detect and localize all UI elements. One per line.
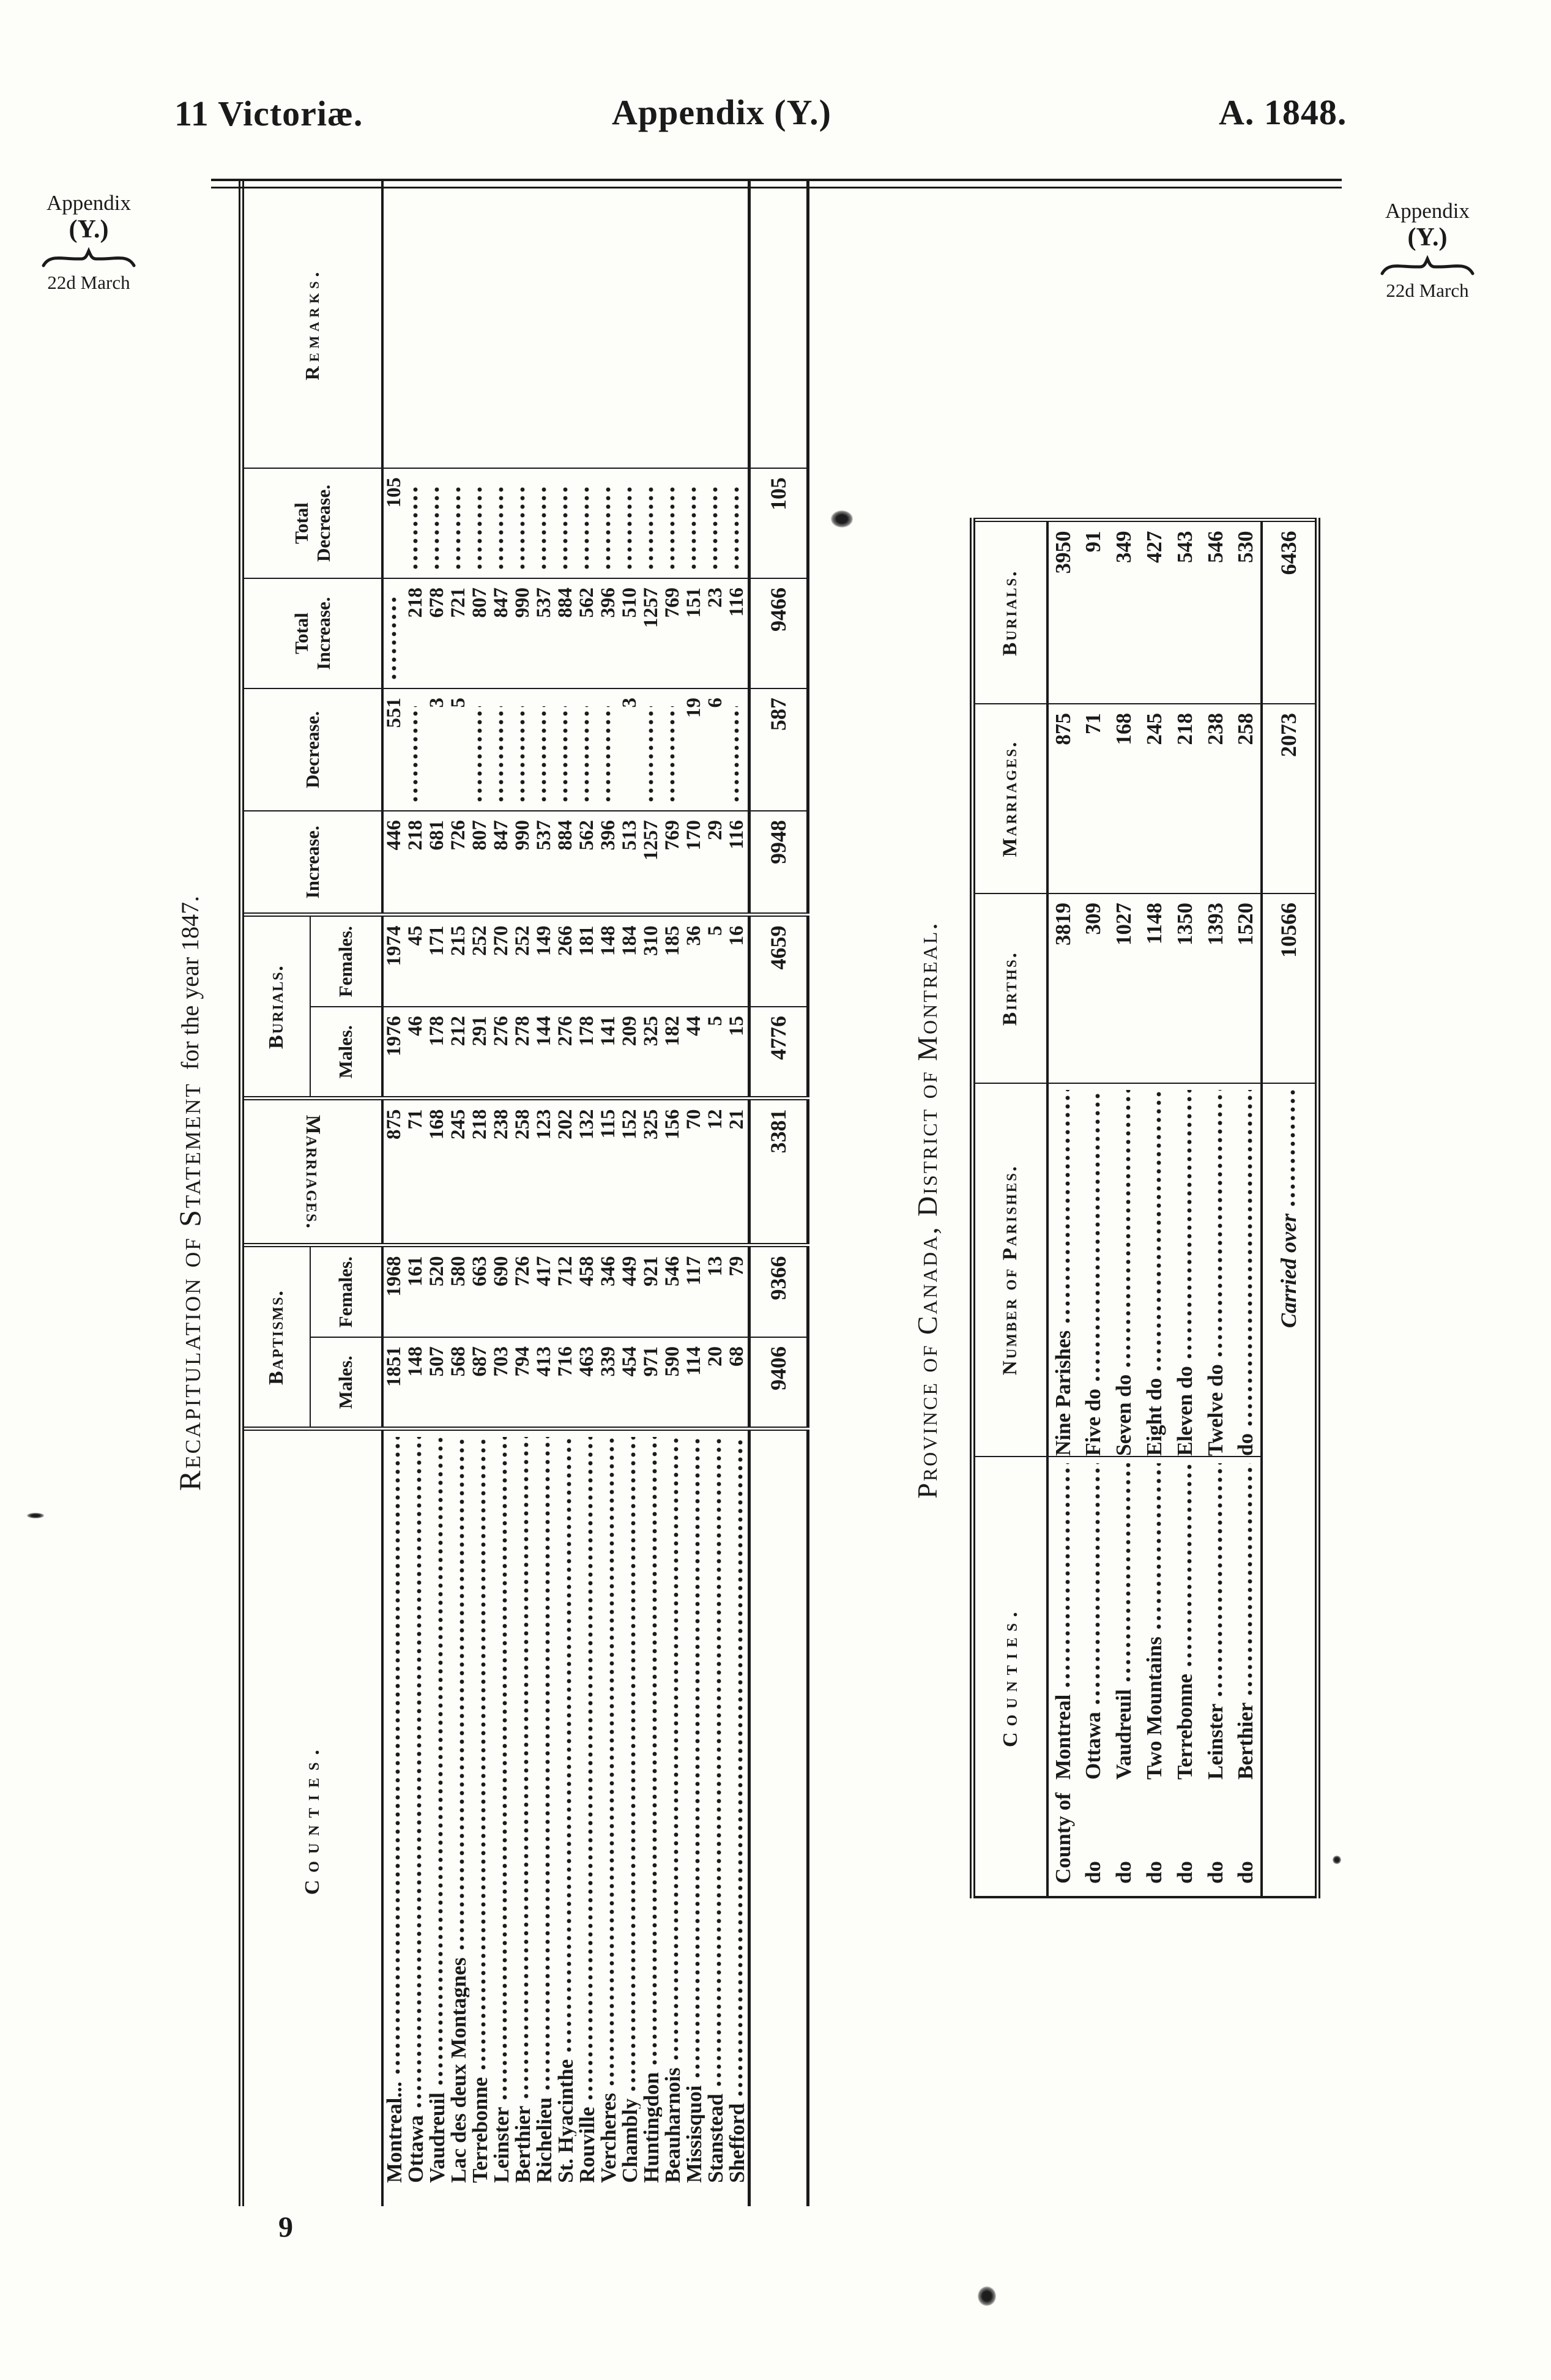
value-cell: 721 bbox=[448, 578, 469, 688]
value-cell: 238 bbox=[491, 1099, 512, 1245]
dot-leader bbox=[477, 706, 483, 802]
parish-count: Seven do bbox=[1112, 1375, 1136, 1456]
value-cell: 1976 bbox=[382, 1007, 405, 1099]
value-cell: 4659 bbox=[749, 915, 808, 1007]
value-cell: 3381 bbox=[749, 1099, 808, 1245]
county-cell: doTwo Mountains bbox=[1139, 1457, 1170, 1897]
brace-icon bbox=[1378, 255, 1476, 276]
value-cell: 325 bbox=[641, 1007, 662, 1099]
county-name: Vercheres bbox=[598, 2093, 619, 2206]
value-cell bbox=[576, 468, 598, 578]
totals-row: 9406936633814776465999485879466105 bbox=[749, 181, 808, 2206]
value-cell: 105 bbox=[382, 468, 405, 578]
value-cell: 1851 bbox=[382, 1337, 405, 1429]
value-cell: 1393 bbox=[1200, 893, 1231, 1083]
dot-leader bbox=[481, 1438, 486, 2070]
county-entry: Ottawa bbox=[405, 1431, 426, 2207]
dot-leader bbox=[563, 486, 568, 569]
value-cell: 875 bbox=[382, 1099, 405, 1245]
remarks-cell bbox=[448, 181, 469, 468]
document-page: 11 Victoriæ. Appendix (Y.) A. 1848. Appe… bbox=[0, 0, 1551, 2380]
parish-entry: Five do bbox=[1082, 1084, 1105, 1456]
value-cell: 309 bbox=[1078, 893, 1109, 1083]
title-text: Province of Canada, District of Montreal… bbox=[911, 921, 943, 1499]
value-cell: 258 bbox=[1231, 704, 1262, 893]
title-text-rest: for the year 1847. bbox=[176, 896, 204, 1070]
value-cell: 339 bbox=[598, 1337, 619, 1429]
value-cell: 115 bbox=[598, 1099, 619, 1245]
value-cell: 178 bbox=[576, 1007, 598, 1099]
column-header-decrease: Decrease. bbox=[242, 688, 382, 811]
dot-leader bbox=[1218, 1090, 1223, 1357]
value-cell: 1520 bbox=[1231, 893, 1262, 1083]
parish-entry: Eleven do bbox=[1173, 1084, 1197, 1456]
value-cell: 178 bbox=[426, 1007, 448, 1099]
parish-cell: do bbox=[1231, 1083, 1262, 1457]
value-cell: 1257 bbox=[641, 811, 662, 915]
value-cell: 794 bbox=[512, 1337, 534, 1429]
value-cell: 266 bbox=[555, 915, 576, 1007]
value-cell: 546 bbox=[662, 1245, 683, 1337]
value-cell: 114 bbox=[683, 1337, 705, 1429]
table-row: Leinster703690238276270847847 bbox=[491, 181, 512, 2206]
value-cell: 238 bbox=[1200, 704, 1231, 893]
county-cell: Vaudreuil bbox=[426, 1429, 448, 2206]
value-cell: 769 bbox=[662, 578, 683, 688]
value-cell: 245 bbox=[1139, 704, 1170, 893]
dot-leader bbox=[541, 706, 547, 802]
column-header-baptisms: Baptisms. bbox=[242, 1245, 310, 1429]
value-cell: 182 bbox=[662, 1007, 683, 1099]
value-cell: 703 bbox=[491, 1337, 512, 1429]
parish-table: Counties. Number of Parishes. Births. Ma… bbox=[970, 518, 1320, 1899]
total-label: Total bbox=[291, 469, 313, 578]
value-cell: 258 bbox=[512, 1099, 534, 1245]
column-header-total-decrease: Total Decrease. bbox=[242, 468, 382, 578]
value-cell bbox=[555, 468, 576, 578]
dot-leader bbox=[584, 706, 590, 802]
dot-leader bbox=[674, 1438, 679, 2061]
dot-leader bbox=[716, 1438, 722, 2087]
value-cell: 148 bbox=[405, 1337, 426, 1429]
value-cell: 149 bbox=[534, 915, 555, 1007]
value-cell: 45 bbox=[405, 915, 426, 1007]
county-entry: Chambly bbox=[619, 1431, 641, 2207]
county-entry: Vercheres bbox=[598, 1431, 619, 2207]
value-cell: 663 bbox=[469, 1245, 491, 1337]
parish-cell: Five do bbox=[1078, 1083, 1109, 1457]
county-entry: doVaudreuil bbox=[1112, 1457, 1136, 1896]
value-cell: 291 bbox=[469, 1007, 491, 1099]
table-row: Montreal...1851196887519761974446551105 bbox=[382, 181, 405, 2206]
value-cell: 590 bbox=[662, 1337, 683, 1429]
value-cell bbox=[448, 468, 469, 578]
table-row: Terrebonne687663218291252807807 bbox=[469, 181, 491, 2206]
dot-leader bbox=[1126, 1090, 1131, 1367]
value-cell bbox=[662, 688, 683, 811]
remarks-cell bbox=[382, 181, 405, 468]
value-cell: 13 bbox=[705, 1245, 726, 1337]
remarks-cell bbox=[534, 181, 555, 468]
county-entry: doOttawa bbox=[1082, 1457, 1105, 1896]
parish-entry: Nine Parishes bbox=[1052, 1084, 1075, 1456]
appendix-label: Appendix bbox=[1357, 199, 1498, 223]
value-cell bbox=[469, 688, 491, 811]
value-cell: 520 bbox=[426, 1245, 448, 1337]
dot-leader bbox=[649, 486, 654, 569]
value-cell: 562 bbox=[576, 811, 598, 915]
value-cell bbox=[491, 688, 512, 811]
county-entry: Huntingdon bbox=[641, 1431, 662, 2207]
brace-icon bbox=[40, 247, 138, 268]
value-cell: 252 bbox=[512, 915, 534, 1007]
dot-leader bbox=[1187, 1463, 1192, 1666]
value-cell: 171 bbox=[426, 915, 448, 1007]
ink-speck bbox=[27, 1513, 44, 1518]
table-row: Rouville463458132178181562562 bbox=[576, 181, 598, 2206]
subheader-males: Males. bbox=[310, 1007, 382, 1099]
value-cell: 141 bbox=[598, 1007, 619, 1099]
value-cell bbox=[576, 688, 598, 811]
county-cell: Shefford bbox=[726, 1429, 749, 2206]
county-name: Stanstead bbox=[705, 2094, 726, 2206]
county-name: Leinster bbox=[491, 2107, 512, 2206]
dot-leader bbox=[520, 486, 526, 569]
dot-leader bbox=[1248, 1090, 1253, 1426]
remarks-cell bbox=[491, 181, 512, 468]
county-cell: Ottawa bbox=[405, 1429, 426, 2206]
parish-entry: do bbox=[1234, 1084, 1257, 1456]
dot-leader bbox=[1065, 1090, 1071, 1323]
value-cell: 454 bbox=[619, 1337, 641, 1429]
dot-leader bbox=[520, 706, 526, 802]
table-row: St. Hyacinthe716712202276266884884 bbox=[555, 181, 576, 2206]
value-cell: 16 bbox=[726, 915, 749, 1007]
remarks-cell bbox=[405, 181, 426, 468]
value-cell: 1968 bbox=[382, 1245, 405, 1337]
value-cell: 6 bbox=[705, 688, 726, 811]
table-row: doTwo MountainsEight do1148245427 bbox=[1139, 520, 1170, 1897]
value-cell: 4776 bbox=[749, 1007, 808, 1099]
column-header-burials: Burials. bbox=[242, 915, 310, 1099]
value-cell: 10566 bbox=[1262, 893, 1318, 1083]
county-entry: Missisquoi bbox=[683, 1431, 705, 2207]
value-cell: 170 bbox=[683, 811, 705, 915]
county-entry: Terrebonne bbox=[469, 1431, 491, 2207]
value-cell: 252 bbox=[469, 915, 491, 1007]
dot-leader bbox=[670, 706, 675, 802]
dot-leader bbox=[545, 1438, 551, 2091]
table-row: Huntingdon97192132532531012571257 bbox=[641, 181, 662, 2206]
parish-cell: Eleven do bbox=[1170, 1083, 1200, 1457]
dot-leader bbox=[609, 1438, 615, 2086]
total-label: Total bbox=[291, 579, 313, 688]
county-cell: Richelieu bbox=[534, 1429, 555, 2206]
dot-leader bbox=[584, 486, 590, 569]
county-cell: Rouville bbox=[576, 1429, 598, 2206]
table-row: Missisquoi11411770443617019151 bbox=[683, 181, 705, 2206]
table2-title: Province of Canada, District of Montreal… bbox=[884, 521, 970, 1898]
dot-leader bbox=[631, 1438, 636, 2091]
value-cell: 117 bbox=[683, 1245, 705, 1337]
subheader-females: Females. bbox=[310, 1245, 382, 1337]
value-cell: 587 bbox=[749, 688, 808, 811]
value-cell: 884 bbox=[555, 578, 576, 688]
remarks-cell bbox=[426, 181, 448, 468]
value-cell: 156 bbox=[662, 1099, 683, 1245]
value-cell: 510 bbox=[619, 578, 641, 688]
county-name: Richelieu bbox=[534, 2097, 555, 2206]
value-cell: 807 bbox=[469, 811, 491, 915]
remarks-cell bbox=[469, 181, 491, 468]
county-entry: doTerrebonne bbox=[1173, 1457, 1197, 1896]
value-cell: 990 bbox=[512, 811, 534, 915]
value-cell: 687 bbox=[469, 1337, 491, 1429]
parish-entry: Twelve do bbox=[1204, 1084, 1227, 1456]
dot-leader bbox=[1095, 1463, 1101, 1704]
page-header-center: Appendix (Y.) bbox=[612, 92, 831, 133]
county-entry: Shefford bbox=[726, 1431, 748, 2207]
parish-cell: Seven do bbox=[1109, 1083, 1139, 1457]
value-cell: 9948 bbox=[749, 811, 808, 915]
parish-count: Twelve do bbox=[1204, 1364, 1227, 1456]
dot-leader bbox=[1126, 1463, 1131, 1682]
value-cell: 458 bbox=[576, 1245, 598, 1337]
county-name: Missisquoi bbox=[683, 2086, 705, 2207]
value-cell bbox=[491, 468, 512, 578]
value-cell bbox=[641, 688, 662, 811]
county-name: Berthier bbox=[1234, 1703, 1257, 1780]
county-prefix: do bbox=[1234, 1780, 1257, 1896]
value-cell: 537 bbox=[534, 578, 555, 688]
remarks-cell bbox=[576, 181, 598, 468]
value-cell: 270 bbox=[491, 915, 512, 1007]
county-cell: Beauharnois bbox=[662, 1429, 683, 2206]
carried-over-row: Carried over1056620736436 bbox=[1262, 520, 1318, 1897]
dot-leader bbox=[606, 706, 611, 802]
value-cell: 218 bbox=[469, 1099, 491, 1245]
recapitulation-table: Counties. Baptisms. Marriages. Burials. … bbox=[239, 181, 809, 2206]
value-cell: 168 bbox=[426, 1099, 448, 1245]
dot-leader bbox=[395, 1438, 401, 2075]
county-prefix: do bbox=[1204, 1780, 1227, 1896]
value-cell: 44 bbox=[683, 1007, 705, 1099]
value-cell: 5 bbox=[705, 1007, 726, 1099]
dot-leader bbox=[499, 706, 504, 802]
county-cell: Huntingdon bbox=[641, 1429, 662, 2206]
value-cell: 513 bbox=[619, 811, 641, 915]
value-cell: 215 bbox=[448, 915, 469, 1007]
county-entry: Stanstead bbox=[705, 1431, 726, 2207]
county-cell: St. Hyacinthe bbox=[555, 1429, 576, 2206]
dot-leader bbox=[627, 486, 633, 569]
county-name: Vaudreuil bbox=[426, 2092, 448, 2206]
value-cell: 20 bbox=[705, 1337, 726, 1429]
value-cell bbox=[705, 468, 726, 578]
recapitulation-section: Recapitulation of Statement for the year… bbox=[141, 181, 869, 2206]
value-cell: 446 bbox=[382, 811, 405, 915]
dot-leader bbox=[459, 1438, 465, 1950]
parish-entry: Eight do bbox=[1143, 1084, 1166, 1456]
county-cell: County ofMontreal bbox=[1047, 1457, 1078, 1897]
county-cell: doOttawa bbox=[1078, 1457, 1109, 1897]
county-cell: Vercheres bbox=[598, 1429, 619, 2206]
value-cell: 1027 bbox=[1109, 893, 1139, 1083]
value-cell bbox=[512, 468, 534, 578]
value-cell: 212 bbox=[448, 1007, 469, 1099]
value-cell: 132 bbox=[576, 1099, 598, 1245]
remarks-cell bbox=[512, 181, 534, 468]
value-cell: 185 bbox=[662, 915, 683, 1007]
page-header-left: 11 Victoriæ. bbox=[174, 93, 363, 134]
value-cell: 91 bbox=[1078, 520, 1109, 704]
value-cell: 116 bbox=[726, 578, 749, 688]
value-cell: 71 bbox=[405, 1099, 426, 1245]
value-cell: 12 bbox=[705, 1099, 726, 1245]
value-cell: 19 bbox=[683, 688, 705, 811]
value-cell bbox=[426, 468, 448, 578]
value-cell: 463 bbox=[576, 1337, 598, 1429]
value-cell: 123 bbox=[534, 1099, 555, 1245]
value-cell: 712 bbox=[555, 1245, 576, 1337]
dot-leader bbox=[734, 706, 740, 802]
value-cell: 9466 bbox=[749, 578, 808, 688]
dot-leader bbox=[438, 1438, 444, 2086]
table-row: Lac des deux Montagnes568580245212215726… bbox=[448, 181, 469, 2206]
column-header-total-increase: Total Increase. bbox=[242, 578, 382, 688]
value-cell: 148 bbox=[598, 915, 619, 1007]
value-cell: 537 bbox=[534, 811, 555, 915]
value-cell bbox=[662, 468, 683, 578]
value-cell: 990 bbox=[512, 578, 534, 688]
value-cell: 1148 bbox=[1139, 893, 1170, 1083]
county-prefix: do bbox=[1173, 1780, 1197, 1896]
carried-over-label: Carried over bbox=[1277, 1214, 1300, 1328]
value-cell bbox=[598, 688, 619, 811]
value-cell: 807 bbox=[469, 578, 491, 688]
value-cell: 971 bbox=[641, 1337, 662, 1429]
value-cell: 413 bbox=[534, 1337, 555, 1429]
date-label: 22d March bbox=[18, 272, 159, 294]
county-name: Montreal... bbox=[384, 2081, 405, 2206]
county-name: Montreal bbox=[1052, 1695, 1075, 1780]
ink-speck bbox=[831, 510, 853, 528]
value-cell: 1974 bbox=[382, 915, 405, 1007]
value-cell bbox=[726, 468, 749, 578]
county-entry: Rouville bbox=[576, 1431, 598, 2207]
county-name: Leinster bbox=[1204, 1704, 1227, 1780]
county-prefix: do bbox=[1112, 1780, 1136, 1896]
value-cell: 276 bbox=[555, 1007, 576, 1099]
dot-leader bbox=[1187, 1090, 1192, 1359]
value-cell: 184 bbox=[619, 915, 641, 1007]
county-name: Shefford bbox=[726, 2103, 748, 2206]
remarks-cell bbox=[641, 181, 662, 468]
remarks-cell bbox=[749, 181, 808, 468]
dot-leader bbox=[563, 706, 568, 802]
value-cell: 3 bbox=[426, 688, 448, 811]
parish-entry: Seven do bbox=[1112, 1084, 1136, 1456]
value-cell: 105 bbox=[749, 468, 808, 578]
value-cell: 68 bbox=[726, 1337, 749, 1429]
county-entry: Berthier bbox=[512, 1431, 534, 2207]
value-cell: 396 bbox=[598, 578, 619, 688]
value-cell: 1350 bbox=[1170, 893, 1200, 1083]
dot-leader bbox=[417, 1438, 422, 2108]
dot-leader bbox=[606, 486, 611, 569]
county-name: Chambly bbox=[619, 2098, 641, 2206]
value-cell: 546 bbox=[1200, 520, 1231, 704]
table-row: doTerrebonneEleven do1350218543 bbox=[1170, 520, 1200, 1897]
value-cell: 276 bbox=[491, 1007, 512, 1099]
dot-leader bbox=[1156, 1090, 1162, 1371]
parish-count: Nine Parishes bbox=[1052, 1330, 1075, 1456]
value-cell: 218 bbox=[405, 578, 426, 688]
value-cell bbox=[382, 578, 405, 688]
dot-leader bbox=[499, 486, 504, 569]
table-row: Shefford6879211516116116 bbox=[726, 181, 749, 2206]
dot-leader bbox=[1290, 1090, 1296, 1206]
parish-count: Eleven do bbox=[1173, 1366, 1197, 1456]
county-cell: Lac des deux Montagnes bbox=[448, 1429, 469, 2206]
value-cell: 3 bbox=[619, 688, 641, 811]
value-cell bbox=[641, 468, 662, 578]
dot-leader bbox=[713, 486, 718, 569]
county-name: Berthier bbox=[512, 2106, 534, 2206]
county-entry: doLeinster bbox=[1204, 1457, 1227, 1896]
value-cell: 5 bbox=[705, 915, 726, 1007]
column-header-marriages: Marriages. bbox=[242, 1099, 382, 1245]
subheader-males: Males. bbox=[310, 1337, 382, 1429]
dot-leader bbox=[738, 1438, 743, 2096]
value-cell: 396 bbox=[598, 811, 619, 915]
county-cell: Terrebonne bbox=[469, 1429, 491, 2206]
value-cell: 5 bbox=[448, 688, 469, 811]
county-entry: Richelieu bbox=[534, 1431, 555, 2207]
table-row: Richelieu413417123144149537537 bbox=[534, 181, 555, 2206]
value-cell: 530 bbox=[1231, 520, 1262, 704]
county-name: Two Mountains bbox=[1143, 1636, 1166, 1780]
value-cell: 690 bbox=[491, 1245, 512, 1337]
dot-leader bbox=[1156, 1463, 1162, 1629]
value-cell: 71 bbox=[1078, 704, 1109, 893]
column-header-counties: Counties. bbox=[973, 1457, 1047, 1897]
remarks-cell bbox=[683, 181, 705, 468]
table-row: Beauharnois590546156182185769769 bbox=[662, 181, 683, 2206]
dot-leader bbox=[652, 1438, 658, 2065]
county-entry: Beauharnois bbox=[662, 1431, 683, 2207]
increase-label: Increase. bbox=[313, 579, 335, 688]
parish-count: do bbox=[1234, 1433, 1257, 1456]
value-cell: 144 bbox=[534, 1007, 555, 1099]
table-row: Vaudreuil5075201681781716813678 bbox=[426, 181, 448, 2206]
value-cell: 681 bbox=[426, 811, 448, 915]
dot-leader bbox=[670, 486, 675, 569]
value-cell: 202 bbox=[555, 1099, 576, 1245]
column-header-marriages: Marriages. bbox=[973, 704, 1047, 893]
value-cell: 23 bbox=[705, 578, 726, 688]
county-prefix: County of bbox=[1052, 1780, 1075, 1896]
parish-section: Province of Canada, District of Montreal… bbox=[884, 521, 1361, 1898]
table-row: doBerthierdo1520258530 bbox=[1231, 520, 1262, 1897]
remarks-cell bbox=[619, 181, 641, 468]
county-name: Rouville bbox=[576, 2107, 598, 2206]
value-cell: 9406 bbox=[749, 1337, 808, 1429]
value-cell bbox=[469, 468, 491, 578]
remarks-cell bbox=[705, 181, 726, 468]
value-cell bbox=[598, 468, 619, 578]
value-cell: 79 bbox=[726, 1245, 749, 1337]
